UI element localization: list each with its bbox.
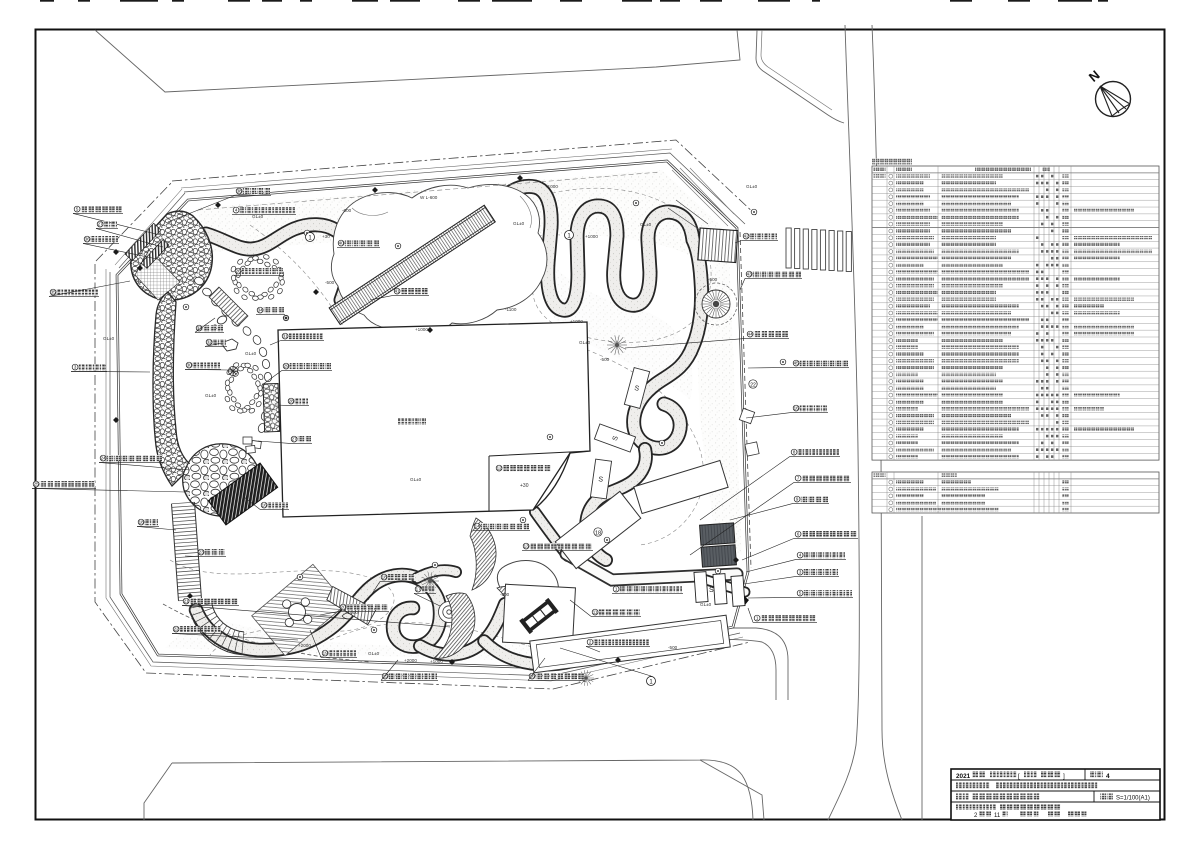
svg-text:GL±0: GL±0 (103, 336, 115, 341)
svg-text:18: 18 (595, 531, 601, 537)
svg-text:-500: -500 (708, 277, 718, 282)
svg-text:38: 38 (237, 189, 243, 194)
svg-text:13: 13 (524, 544, 530, 549)
svg-text:GL±0: GL±0 (368, 651, 380, 656)
svg-text:29: 29 (284, 364, 290, 369)
svg-text:-500: -500 (668, 645, 678, 650)
svg-text:+1000: +1000 (585, 234, 598, 239)
svg-text:44: 44 (748, 332, 754, 337)
svg-text:GL±0: GL±0 (205, 393, 217, 398)
svg-text:22: 22 (174, 627, 180, 632)
svg-text:GL±0: GL±0 (410, 477, 422, 482)
svg-text:34: 34 (258, 308, 264, 313)
svg-text:+30: +30 (520, 483, 529, 489)
svg-text:GL±0: GL±0 (579, 340, 591, 345)
svg-text:+2000: +2000 (404, 658, 417, 663)
svg-text:+1000: +1000 (430, 659, 443, 664)
svg-text:24: 24 (101, 456, 107, 461)
svg-text:GL±0: GL±0 (252, 214, 264, 219)
svg-text:GL±0: GL±0 (746, 184, 758, 189)
svg-text:41: 41 (395, 289, 401, 294)
svg-text:16: 16 (262, 503, 268, 508)
svg-text:+30: +30 (322, 234, 330, 239)
svg-text:32: 32 (207, 340, 213, 345)
svg-text:]: ] (1063, 773, 1065, 780)
svg-text:GL±0: GL±0 (245, 351, 257, 356)
svg-text:4: 4 (1106, 773, 1110, 780)
svg-text:S: S (709, 587, 714, 594)
svg-text:20: 20 (341, 605, 347, 610)
svg-text:GL±0: GL±0 (640, 222, 652, 227)
svg-text:18: 18 (139, 520, 145, 525)
svg-text:11: 11 (593, 610, 598, 615)
svg-text:2021: 2021 (956, 773, 971, 780)
svg-text:GL±0: GL±0 (700, 602, 712, 607)
svg-text:-500: -500 (600, 357, 610, 362)
svg-text:+1000: +1000 (345, 610, 358, 615)
svg-text:21: 21 (184, 599, 190, 604)
svg-text:-600: -600 (342, 208, 352, 213)
svg-text:S=1/100(A1): S=1/100(A1) (1116, 796, 1150, 802)
svg-text:+2000: +2000 (298, 643, 311, 648)
svg-text:11: 11 (994, 813, 1001, 819)
svg-text:43: 43 (747, 272, 753, 277)
svg-text:35: 35 (51, 290, 57, 295)
svg-text:-500: -500 (500, 592, 510, 597)
svg-text:26: 26 (236, 269, 242, 274)
svg-text:23: 23 (199, 550, 205, 555)
svg-text:-500: -500 (325, 280, 335, 285)
svg-text:19: 19 (323, 651, 329, 656)
svg-text:GL±0: GL±0 (513, 221, 525, 226)
svg-text:W L-600: W L-600 (420, 195, 438, 200)
svg-text:28: 28 (289, 399, 295, 404)
svg-text:+1000: +1000 (545, 184, 558, 189)
svg-text:27: 27 (292, 437, 298, 442)
svg-text:18: 18 (382, 575, 388, 580)
svg-text:-1100: -1100 (505, 307, 517, 312)
svg-text:22: 22 (750, 382, 756, 388)
svg-text:31: 31 (283, 334, 289, 339)
svg-text:36: 36 (85, 237, 91, 242)
svg-text:42: 42 (744, 234, 750, 239)
svg-text:16: 16 (794, 406, 800, 411)
svg-text:27: 27 (98, 222, 104, 227)
svg-text:30: 30 (187, 363, 193, 368)
svg-text:40: 40 (339, 241, 345, 246)
svg-text:+1000: +1000 (570, 319, 583, 324)
svg-text:45: 45 (794, 361, 800, 366)
svg-text:14: 14 (475, 524, 481, 529)
svg-text:+1000: +1000 (415, 327, 428, 332)
svg-text:12: 12 (497, 466, 503, 471)
svg-text:17: 17 (416, 587, 422, 592)
svg-text:25: 25 (34, 482, 40, 487)
svg-text:[: [ (1018, 773, 1020, 780)
